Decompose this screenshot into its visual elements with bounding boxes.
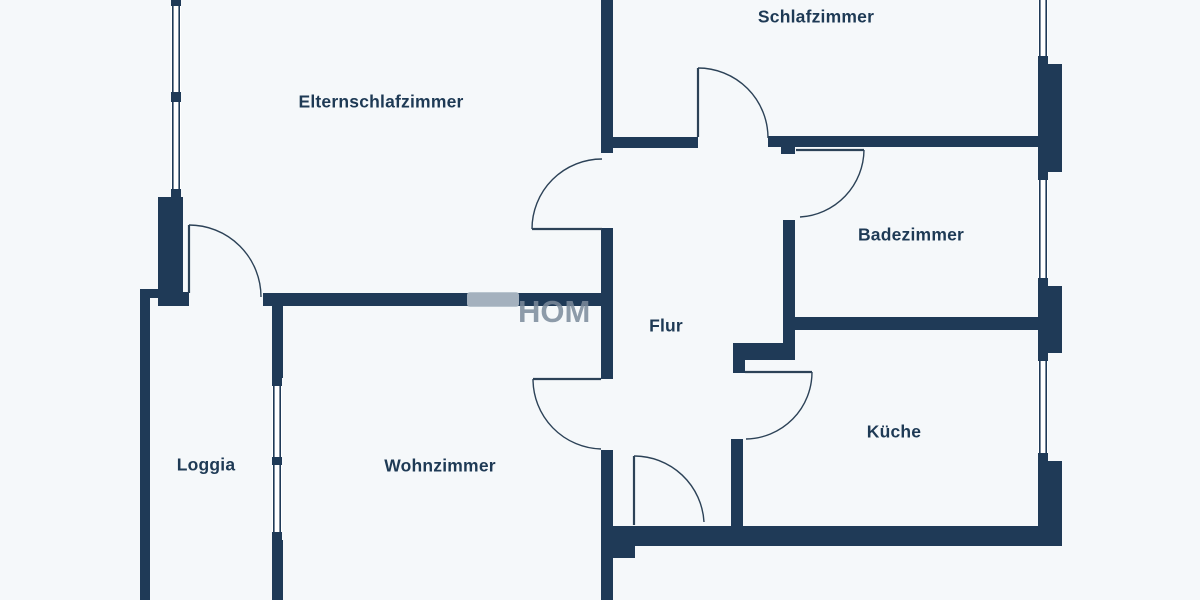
room-label-flur: Flur — [649, 316, 683, 336]
eltern-west-window-mullion-2 — [171, 189, 181, 197]
room-label-wohnzimmer: Wohnzimmer — [384, 456, 496, 476]
room-label-loggia: Loggia — [177, 455, 236, 475]
wall-flur-kueche-jog — [745, 343, 795, 360]
loggia-window-mullion-0 — [272, 378, 282, 386]
wall-spine-wall-upper — [601, 0, 613, 153]
watermark-logo-mark — [467, 292, 519, 307]
wall-eltern-door-jamb — [158, 292, 189, 306]
eltern-west-window-mullion-0 — [171, 0, 181, 6]
kueche-east-window-mullion-0 — [1038, 353, 1048, 361]
bad-east-window-mullion-1 — [1038, 278, 1048, 286]
wall-loggia-west-wall — [140, 296, 150, 600]
wall-kueche-west-wall-upper — [733, 343, 745, 373]
wall-left-window-pillar — [158, 197, 183, 294]
loggia-window-mullion-2 — [272, 532, 282, 540]
eltern-west-window-mullion-1 — [171, 92, 181, 102]
wall-flur-bad-wall — [783, 220, 795, 360]
wall-bad-kueche-wall — [783, 317, 1038, 330]
loggia-window-mullion-1 — [272, 457, 282, 465]
floorplan-page: HOMElternschlafzimmerSchlafzimmerBadezim… — [0, 0, 1200, 600]
wall-east-pier-2 — [1038, 286, 1062, 353]
wall-south-wall — [601, 526, 1062, 546]
floorplan-canvas: HOMElternschlafzimmerSchlafzimmerBadezim… — [0, 0, 1200, 600]
kueche-east-window-mullion-1 — [1038, 453, 1048, 461]
wall-east-pier-3 — [1038, 461, 1062, 546]
room-label-schlafzimmer: Schlafzimmer — [758, 7, 874, 27]
wall-schlaf-south-wall-east — [768, 136, 1038, 147]
wall-bad-door-jamb — [781, 147, 795, 154]
wall-spine-wall-mid — [601, 228, 613, 379]
room-label-badezimmer: Badezimmer — [858, 225, 964, 245]
bad-east-window-mullion-0 — [1038, 172, 1048, 180]
watermark-text: HOM — [518, 294, 590, 329]
wall-kueche-west-wall-lower — [731, 439, 743, 526]
wall-loggia-wohn-wall-lower — [272, 540, 283, 600]
room-label-kueche: Küche — [867, 422, 922, 442]
wall-loggia-wohn-wall-upper — [272, 306, 283, 378]
room-label-elternschlafzimmer: Elternschlafzimmer — [298, 92, 463, 112]
schlaf-east-window-mullion-0 — [1038, 56, 1048, 64]
wall-spine-wall-lower — [601, 450, 613, 600]
wall-entry-step — [613, 546, 635, 558]
wall-east-pier-1 — [1038, 64, 1062, 172]
wall-schlaf-south-wall-west — [613, 137, 698, 148]
